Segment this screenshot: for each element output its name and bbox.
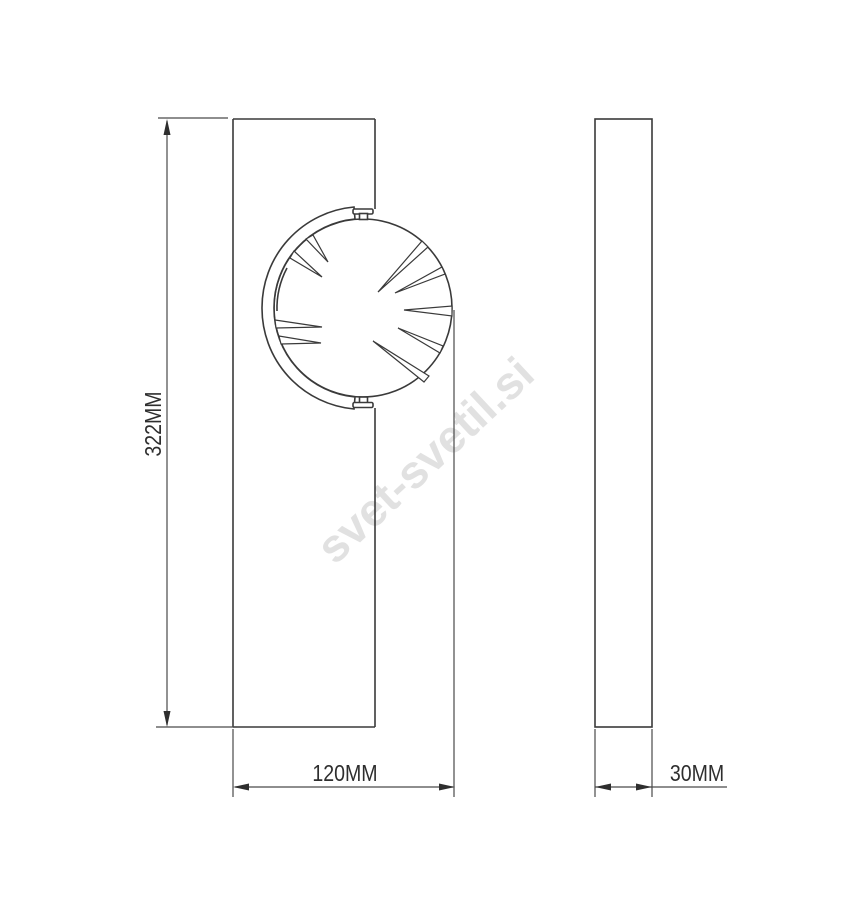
arrow-left-icon: [595, 784, 611, 791]
arrow-up-icon: [164, 119, 171, 135]
arrow-left-icon: [233, 784, 249, 791]
arrow-right-icon: [439, 784, 455, 791]
front-view: [233, 119, 452, 727]
mount-tab-top: [353, 209, 373, 220]
height-dimension-label: 322MM: [140, 373, 166, 475]
mount-tab-bottom: [353, 397, 373, 408]
side-view: [595, 119, 652, 727]
height-extension-lines: [156, 118, 237, 727]
technical-drawing-page: svet-svetil.si: [0, 0, 848, 912]
side-panel-outline: [595, 119, 652, 727]
arrow-down-icon: [164, 711, 171, 727]
depth-dimension-label: 30MM: [646, 760, 748, 786]
height-dimension: [156, 118, 237, 727]
width-dimension-label: 120MM: [294, 760, 396, 786]
